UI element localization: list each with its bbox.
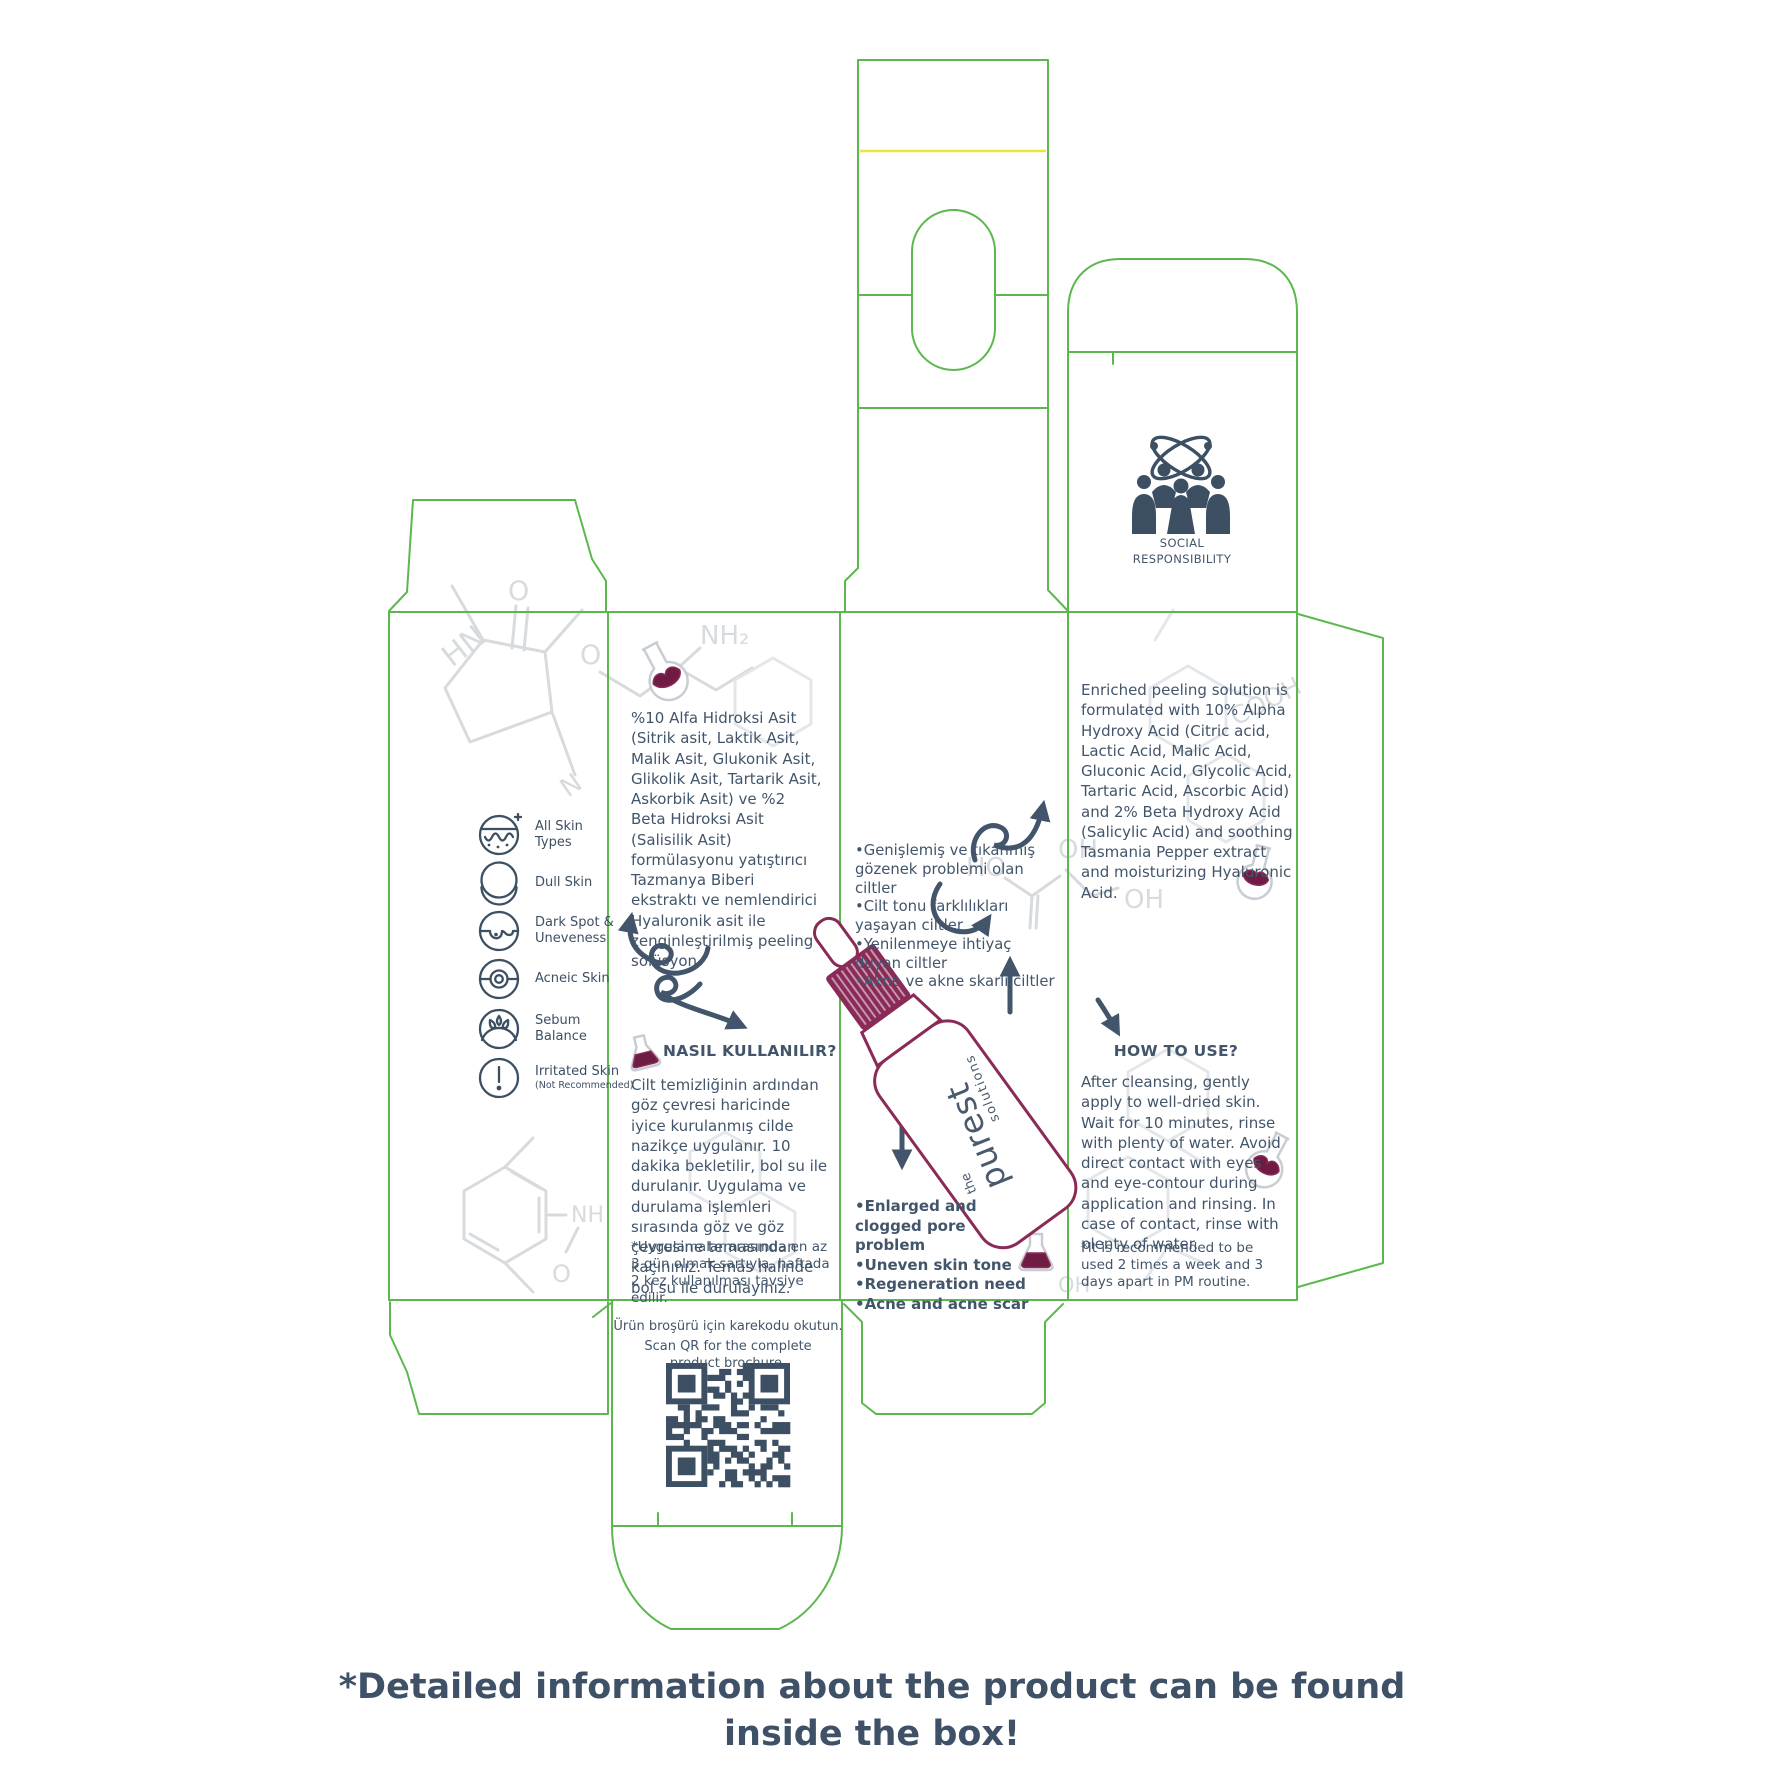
skin-type-row-irritated-skin: Irritated Skin (Not Recommended) bbox=[477, 1055, 633, 1101]
qr-instruction-english: Scan QR for the complete product brochur… bbox=[641, 1339, 815, 1373]
list-item: •Akne ve akne skarlı ciltler bbox=[855, 973, 1057, 992]
skin-type-label: Dark Spot & Uneveness bbox=[535, 915, 623, 948]
arrowhead-down-en bbox=[1098, 1000, 1117, 1031]
list-item: •Cilt tonu farklılıkları yaşayan ciltler bbox=[855, 898, 1057, 936]
molecule-label-hn: HN bbox=[435, 619, 492, 674]
tall-top-flap bbox=[845, 60, 1068, 611]
skin-type-row-dull-skin: Dull Skin bbox=[477, 860, 623, 906]
skin-concern-list-turkish: •Genişlemiş ve tıkanmış gözenek problemi… bbox=[855, 842, 1057, 992]
qr-code bbox=[666, 1363, 790, 1487]
top-left-flap bbox=[389, 500, 606, 611]
qr-instruction-turkish: Ürün broşürü için karekodu okutun. bbox=[612, 1318, 844, 1336]
irritated-skin-icon bbox=[477, 1055, 523, 1101]
glue-flap bbox=[1298, 614, 1383, 1287]
list-item: •Enlarged and clogged pore problem bbox=[855, 1197, 1031, 1256]
sebum-balance-icon bbox=[477, 1006, 523, 1052]
skin-type-row-sebum-balance: Sebum Balance bbox=[477, 1006, 623, 1052]
molecule-label-o: O bbox=[508, 576, 529, 607]
skin-concern-list-english: •Enlarged and clogged pore problem •Unev… bbox=[855, 1197, 1031, 1314]
dark-spot-icon bbox=[477, 908, 523, 954]
dull-skin-icon bbox=[477, 860, 523, 906]
molecule-hydantoin: HN N O bbox=[435, 576, 588, 804]
molecule-benzene-nh: NH O bbox=[464, 1138, 604, 1292]
skin-type-label: Dull Skin bbox=[535, 875, 623, 891]
molecule-label-o: O bbox=[580, 640, 601, 671]
thumb-cutout bbox=[912, 210, 995, 370]
skin-type-label: Irritated Skin bbox=[535, 1064, 621, 1080]
spiral-arrow-down-tr bbox=[657, 977, 742, 1026]
list-item: •Genişlemiş ve tıkanmış gözenek problemi… bbox=[855, 842, 1057, 898]
skin-type-row-all-skin-types: All Skin Types bbox=[477, 812, 623, 858]
how-to-use-title-turkish: NASIL KULLANILIR? bbox=[663, 1041, 837, 1062]
tuck-tongue bbox=[612, 1526, 842, 1629]
description-english: Enriched peeling solution is formulated … bbox=[1081, 680, 1295, 903]
all-skin-types-icon bbox=[477, 812, 523, 858]
bottom-mid-flap bbox=[844, 1304, 1063, 1414]
list-item: •Acne and acne scar bbox=[855, 1295, 1031, 1315]
skin-type-label: Acneic Skin bbox=[535, 971, 623, 987]
list-item: •Regeneration need bbox=[855, 1275, 1031, 1295]
skin-type-label: All Skin Types bbox=[535, 819, 623, 852]
social-responsibility-label: SOCIAL RESPONSIBILITY bbox=[1099, 536, 1265, 567]
round-flask-icon bbox=[633, 637, 694, 707]
packaging-dieline-proof: HN N O O NH₂ NH O bbox=[0, 0, 1772, 1772]
social-label-line1: SOCIAL bbox=[1099, 536, 1265, 552]
molecule-label-nh: NH bbox=[571, 1203, 604, 1228]
social-label-line2: RESPONSIBILITY bbox=[1099, 552, 1265, 568]
acneic-skin-icon bbox=[477, 956, 523, 1002]
skin-type-row-acneic-skin: Acneic Skin bbox=[477, 956, 623, 1002]
social-responsibility-icon bbox=[1132, 429, 1230, 534]
description-turkish: %10 Alfa Hidroksi Asit (Sitrik asit, Lak… bbox=[631, 708, 824, 971]
footer-note: *Detailed information about the product … bbox=[286, 1664, 1458, 1759]
molecule-label-o: O bbox=[552, 1260, 571, 1288]
skin-type-note: (Not Recommended) bbox=[535, 1080, 633, 1091]
list-item: •Yenilenmeye ihtiyaç duyan ciltler bbox=[855, 936, 1057, 974]
how-to-use-text-english: After cleansing, gently apply to well-dr… bbox=[1081, 1072, 1287, 1254]
usage-note-english: *It is recommended to be used 2 times a … bbox=[1081, 1240, 1289, 1291]
skin-type-label: Sebum Balance bbox=[535, 1013, 623, 1046]
molecule-label-n: N bbox=[555, 768, 588, 804]
bottom-left-flap bbox=[390, 1302, 611, 1414]
usage-note-turkish: *Uygulamalar arasında en az 3 gün olmak … bbox=[631, 1239, 833, 1307]
how-to-use-title-english: HOW TO USE? bbox=[1081, 1041, 1271, 1062]
molecule-label-nh2: NH₂ bbox=[700, 621, 749, 651]
list-item: •Uneven skin tone bbox=[855, 1256, 1031, 1276]
skin-type-row-dark-spot: Dark Spot & Uneveness bbox=[477, 908, 623, 954]
